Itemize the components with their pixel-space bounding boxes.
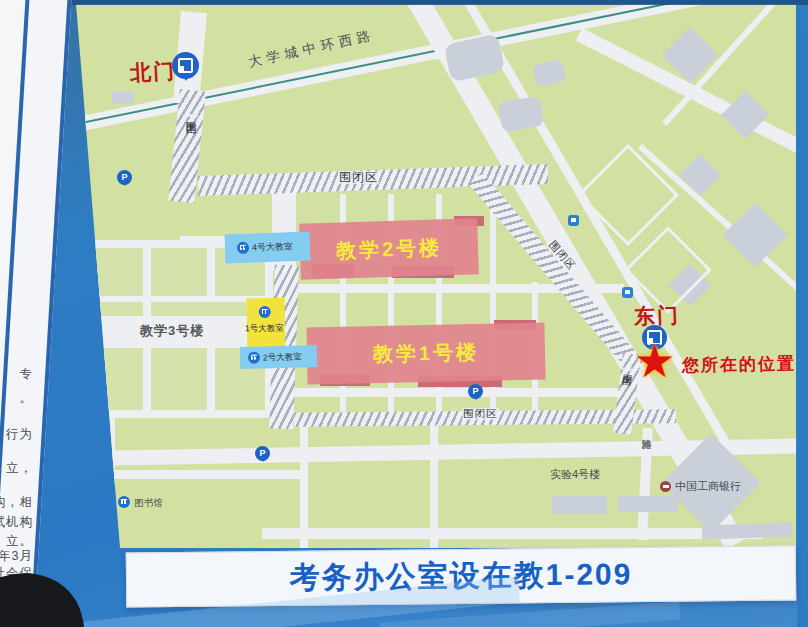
building-block bbox=[151, 348, 207, 410]
road-segment bbox=[262, 528, 762, 539]
bank-label: 中国工商银行 bbox=[675, 480, 741, 492]
building-block bbox=[87, 348, 143, 410]
enclosed-area-label: 围闭区 bbox=[184, 114, 198, 117]
building-block bbox=[702, 522, 792, 539]
left-panel-text: 行为 bbox=[6, 426, 33, 443]
bank-icon bbox=[660, 481, 671, 492]
library-label: 图书馆 bbox=[134, 498, 163, 508]
bus-stop-icon bbox=[622, 287, 633, 298]
teaching-building2-label: 教学2号楼 bbox=[336, 234, 443, 264]
classroom4-strip: 4号大教室 bbox=[225, 232, 311, 264]
left-panel-text: 专 bbox=[20, 366, 34, 383]
building-pin-icon bbox=[248, 351, 260, 363]
left-panel-text: 11年3月 bbox=[0, 548, 33, 565]
parking-icon: P bbox=[255, 446, 270, 461]
enclosed-area-label: 围闭区 bbox=[338, 171, 379, 184]
building-block bbox=[151, 248, 207, 296]
road-segment bbox=[70, 470, 305, 479]
classroom4-label: 4号大教室 bbox=[252, 242, 293, 253]
building-block bbox=[87, 302, 143, 316]
current-location-star-icon: ★ bbox=[634, 338, 675, 384]
road-segment bbox=[107, 418, 115, 548]
building-block bbox=[722, 202, 787, 267]
left-panel-text: 试机构 bbox=[0, 514, 33, 531]
classroom1-label: 1号大教室 bbox=[245, 324, 284, 334]
road-segment bbox=[430, 425, 438, 548]
classroom2-label: 2号大教室 bbox=[263, 352, 302, 362]
parking-icon: P bbox=[468, 384, 483, 399]
building-block bbox=[552, 496, 607, 514]
building-block bbox=[498, 96, 544, 132]
teaching-building1-label: 教学1号楼 bbox=[373, 339, 480, 368]
library-pin-icon bbox=[118, 496, 130, 508]
photo-top-edge bbox=[66, 0, 808, 5]
parking-icon: P bbox=[117, 170, 132, 185]
building-block bbox=[618, 496, 678, 512]
classroom2-strip: 2号大教室 bbox=[240, 345, 318, 369]
building-pin-icon bbox=[237, 242, 249, 254]
north-gate-icon bbox=[172, 52, 199, 79]
road-segment bbox=[300, 425, 308, 548]
teaching-building3-label: 教学3号楼 bbox=[140, 324, 204, 338]
left-panel-text: 。 bbox=[20, 390, 34, 407]
north-gate-label: 北门 bbox=[129, 59, 176, 84]
left-panel-text: 构，相 bbox=[0, 494, 33, 511]
east-gate-label: 东门 bbox=[634, 303, 681, 328]
building-block bbox=[532, 60, 565, 87]
lab-building4-label: 实验4号楼 bbox=[550, 468, 600, 480]
photo-right-edge bbox=[797, 60, 808, 627]
bus-stop-icon bbox=[568, 215, 579, 226]
building-block bbox=[112, 92, 134, 104]
left-panel-text: 立， bbox=[6, 460, 33, 477]
teaching-building1: 教学1号楼 bbox=[306, 323, 545, 385]
campus-map: 教学3号楼 围闭区 围闭区 围闭区 围闭区 围闭区 大学城中环西路 博雅路 教学… bbox=[62, 4, 796, 548]
building-pin-icon bbox=[259, 306, 271, 318]
enclosed-area-label: 围闭区 bbox=[462, 408, 499, 420]
gate-door-glyph bbox=[178, 58, 193, 73]
building-block bbox=[87, 248, 143, 296]
current-location-label: 您所在的位置 bbox=[682, 355, 796, 376]
campus-map-photo: 教学3号楼 围闭区 围闭区 围闭区 围闭区 围闭区 大学城中环西路 博雅路 教学… bbox=[0, 0, 808, 627]
teaching-building2: 教学2号楼 bbox=[299, 218, 479, 280]
